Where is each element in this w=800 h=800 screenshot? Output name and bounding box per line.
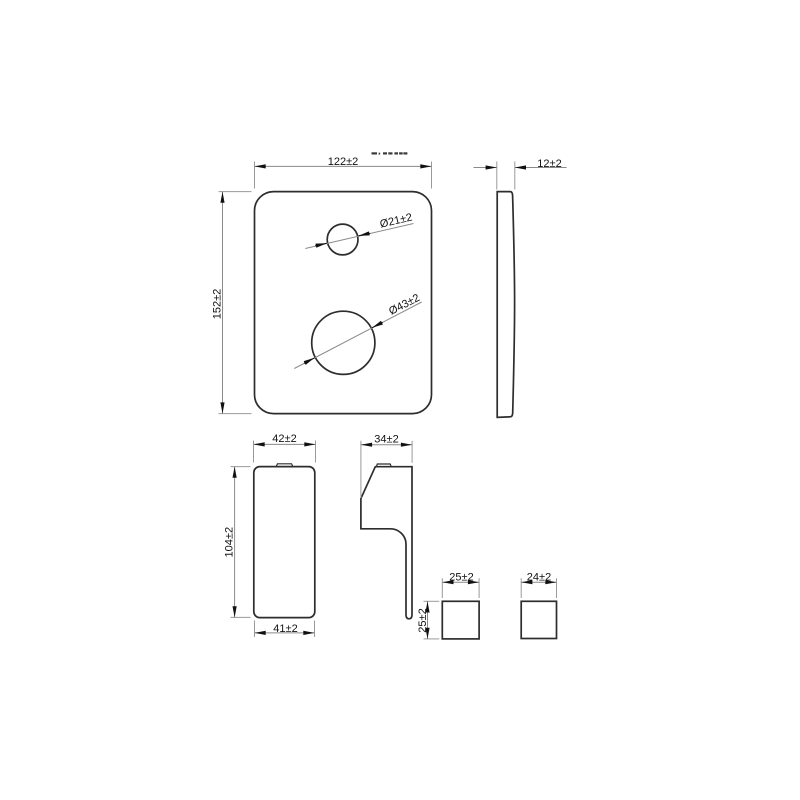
- svg-text:Ø43±2: Ø43±2: [387, 292, 422, 318]
- svg-text:122±2: 122±2: [328, 156, 359, 168]
- svg-text:24±2: 24±2: [527, 571, 551, 583]
- svg-text:41±2: 41±2: [273, 623, 297, 635]
- svg-text:12±2: 12±2: [537, 158, 561, 170]
- svg-text:25±2: 25±2: [417, 608, 429, 632]
- svg-text:34±2: 34±2: [374, 433, 398, 445]
- svg-text:104±2: 104±2: [223, 527, 235, 558]
- svg-text:152±2: 152±2: [211, 289, 223, 320]
- svg-text:42±2: 42±2: [272, 433, 296, 445]
- svg-text:25±2: 25±2: [449, 571, 473, 583]
